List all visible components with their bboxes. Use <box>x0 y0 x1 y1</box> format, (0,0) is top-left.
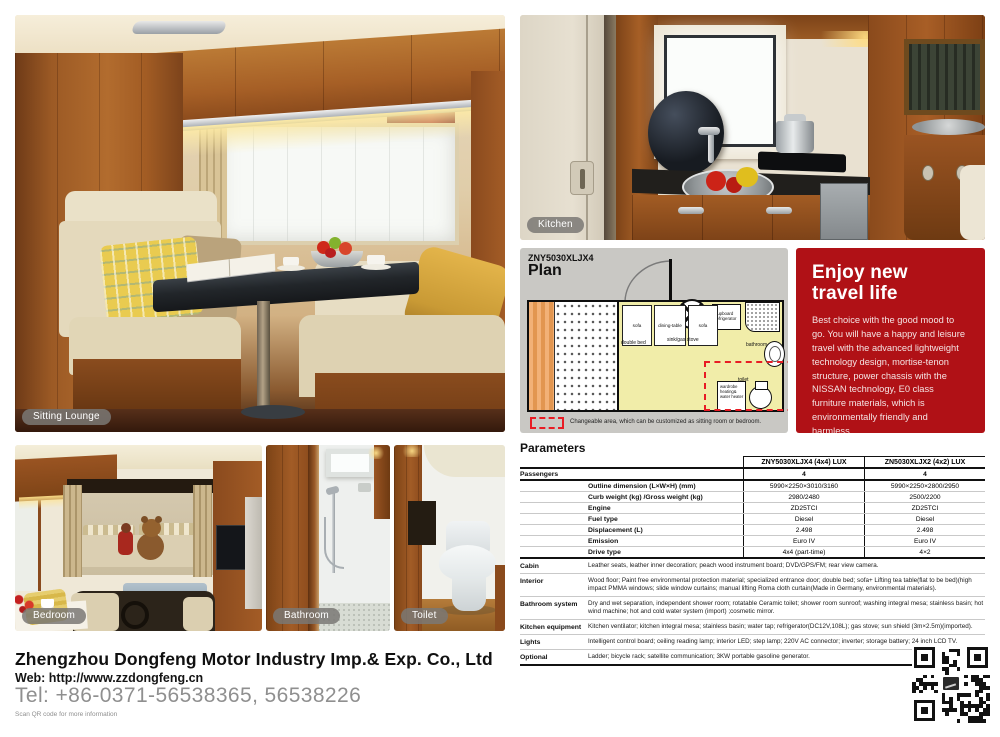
toilet-lid <box>439 545 496 581</box>
saucer-right <box>361 264 391 270</box>
door-swing-arc <box>622 258 672 302</box>
promo-title-line1: Enjoy new <box>812 263 969 284</box>
parameters-table: ZNY5030XLJX4 (4x4) LUX ZN5030XLJX2 (4x2)… <box>520 456 985 666</box>
toilet-lamp-glow <box>400 445 424 457</box>
cabinet-handle-oval-1 <box>922 165 934 181</box>
kitchen-faucet <box>708 133 714 163</box>
parameters-section: Parameters ZNY5030XLJX4 (4x4) LUX ZN5030… <box>520 441 985 666</box>
cab-seat-right <box>183 597 213 631</box>
qr-center-logo <box>942 676 960 691</box>
model-column-2: ZN5030XLJX2 (4x2) LUX <box>864 456 985 467</box>
bedroom-photo: Bedroom <box>15 445 262 631</box>
spec-row: Curb weight (kg) /Gross weight (kg) 2980… <box>520 491 985 502</box>
living-area: cupboard refrigerator wardrobe heating& … <box>617 302 782 410</box>
entrance-door <box>520 15 608 240</box>
ceiling-vent <box>131 21 227 34</box>
shower-vent <box>358 483 371 492</box>
bathroom-door <box>266 445 312 631</box>
kitchen-photo-label: Kitchen <box>527 217 584 233</box>
changeable-area-outline <box>704 361 788 411</box>
door-frame <box>604 15 616 240</box>
sofa-corner <box>960 165 985 240</box>
bedroom-photo-label: Bedroom <box>22 608 86 624</box>
promo-title-line2: travel life <box>812 284 969 305</box>
teddy-bear-ear-left <box>141 516 148 523</box>
brochure-page: Sitting Lounge Kitchen ZNY5030XL <box>0 0 1000 737</box>
spec-row: Emission Euro IV Euro IV <box>520 535 985 546</box>
legend-text: Changeable area, which can be customized… <box>570 419 782 425</box>
table-header-row: ZNY5030XLJX4 (4x4) LUX ZN5030XLJX2 (4x2)… <box>520 456 985 469</box>
promo-box: Enjoy new travel life Best choice with t… <box>796 248 985 433</box>
mirror-cabinet <box>904 39 985 115</box>
website-link[interactable]: Web: http://www.zzdongfeng.cn <box>15 671 203 685</box>
bathroom-lamp-glow <box>366 447 386 459</box>
tall-fridge <box>245 497 262 609</box>
drawer-handle-1 <box>678 207 704 214</box>
qr-code <box>912 645 990 723</box>
pepper-yellow <box>736 167 758 187</box>
toilet-photo: Toilet <box>394 445 505 631</box>
toilet-ceiling-curve <box>424 445 505 477</box>
phone-number: Tel: +86-0371-56538365, 56538226 <box>15 684 361 708</box>
shower-area-symbol <box>745 302 780 332</box>
floor-plan-drawing: cupboard refrigerator wardrobe heating& … <box>527 300 784 412</box>
feature-row: Interior Wood floor; Paint free environm… <box>520 573 985 596</box>
induction-cooktop <box>758 151 846 172</box>
cooking-pot <box>776 121 814 153</box>
driver-cab-area <box>529 302 555 410</box>
promo-body: Best choice with the good mood to go. Yo… <box>812 314 969 433</box>
right-sink <box>912 119 985 135</box>
lounge-photo-label: Sitting Lounge <box>22 409 111 425</box>
spec-rows: Outline dimension (L×W×H) (mm) 5990×2250… <box>520 481 985 559</box>
bed-curtain-left <box>63 485 82 577</box>
bed-curtain-right <box>193 485 212 577</box>
plan-bathroom-label: bathroom <box>746 342 767 348</box>
shower-head <box>325 486 339 496</box>
double-bed-area <box>555 302 617 410</box>
qr-finder-tr <box>967 647 988 668</box>
bathroom-door-edge <box>308 445 319 631</box>
pepper-red <box>706 171 726 191</box>
qr-hint-text: Scan QR code for more information <box>15 711 117 718</box>
spec-row: Fuel type Diesel Diesel <box>520 513 985 524</box>
table-pole <box>257 301 270 413</box>
qr-finder-bl <box>914 700 935 721</box>
shower-hose <box>324 517 344 569</box>
teddy-bear-body <box>137 533 164 560</box>
passengers-value-1: 4 <box>743 469 864 479</box>
toilet-right-wood <box>495 565 505 631</box>
promo-title: Enjoy new travel life <box>812 263 969 305</box>
entrance-door-line <box>669 259 672 301</box>
floor-plan-panel: ZNY5030XLJX4 Plan cupboard refrigerator … <box>520 248 788 433</box>
fruit-orange <box>339 242 352 255</box>
bathroom-photo: Bathroom <box>266 445 390 631</box>
toilet-photo-label: Toilet <box>401 608 448 624</box>
passengers-row: Passengers 4 4 <box>520 469 985 481</box>
fruit-bowl <box>311 251 363 267</box>
passengers-value-2: 4 <box>864 469 985 479</box>
teddy-bear-ear-right <box>155 516 162 523</box>
doll <box>118 531 133 555</box>
drawer-handle-2 <box>766 207 792 214</box>
plan-double-bed-label: double bed <box>621 340 646 346</box>
fruit-red-2 <box>325 248 336 258</box>
door-lock <box>570 161 594 195</box>
feature-row: Bathroom system Dry and wet separation, … <box>520 596 985 619</box>
feature-row: Cabin Leather seats, leather inner decor… <box>520 559 985 573</box>
white-cup <box>41 599 54 608</box>
plan-title: Plan <box>528 262 562 280</box>
toilet-dark-shelf <box>408 501 436 545</box>
spec-row: Outline dimension (L×W×H) (mm) 5990×2250… <box>520 481 985 491</box>
table-foot <box>241 405 305 419</box>
company-name: Zhengzhou Dongfeng Motor Industry Imp.& … <box>15 649 493 670</box>
spec-row: Drive type 4x4 (part-time) 4×2 <box>520 546 985 557</box>
qr-finder-tl <box>914 647 935 668</box>
sitting-lounge-photo: Sitting Lounge <box>15 15 505 432</box>
plan-sink-label: sink/gas stove <box>667 337 699 343</box>
spec-row: Engine ZD25TCI ZD25TCI <box>520 502 985 513</box>
steering-wheel <box>121 601 149 629</box>
model-column-1: ZNY5030XLJX4 (4x4) LUX <box>743 456 864 467</box>
kitchen-photo: Kitchen <box>520 15 985 240</box>
legend-swatch <box>530 417 564 429</box>
bathroom-photo-label: Bathroom <box>273 608 340 624</box>
passengers-label: Passengers <box>520 469 743 479</box>
under-counter-fridge <box>820 183 868 240</box>
spec-row: Displacement (L) 2.498 2.498 <box>520 524 985 535</box>
feature-row: Kitchen equipment Kitchen ventilator; ki… <box>520 619 985 634</box>
parameters-title: Parameters <box>520 441 985 455</box>
saucer-left <box>277 265 305 271</box>
